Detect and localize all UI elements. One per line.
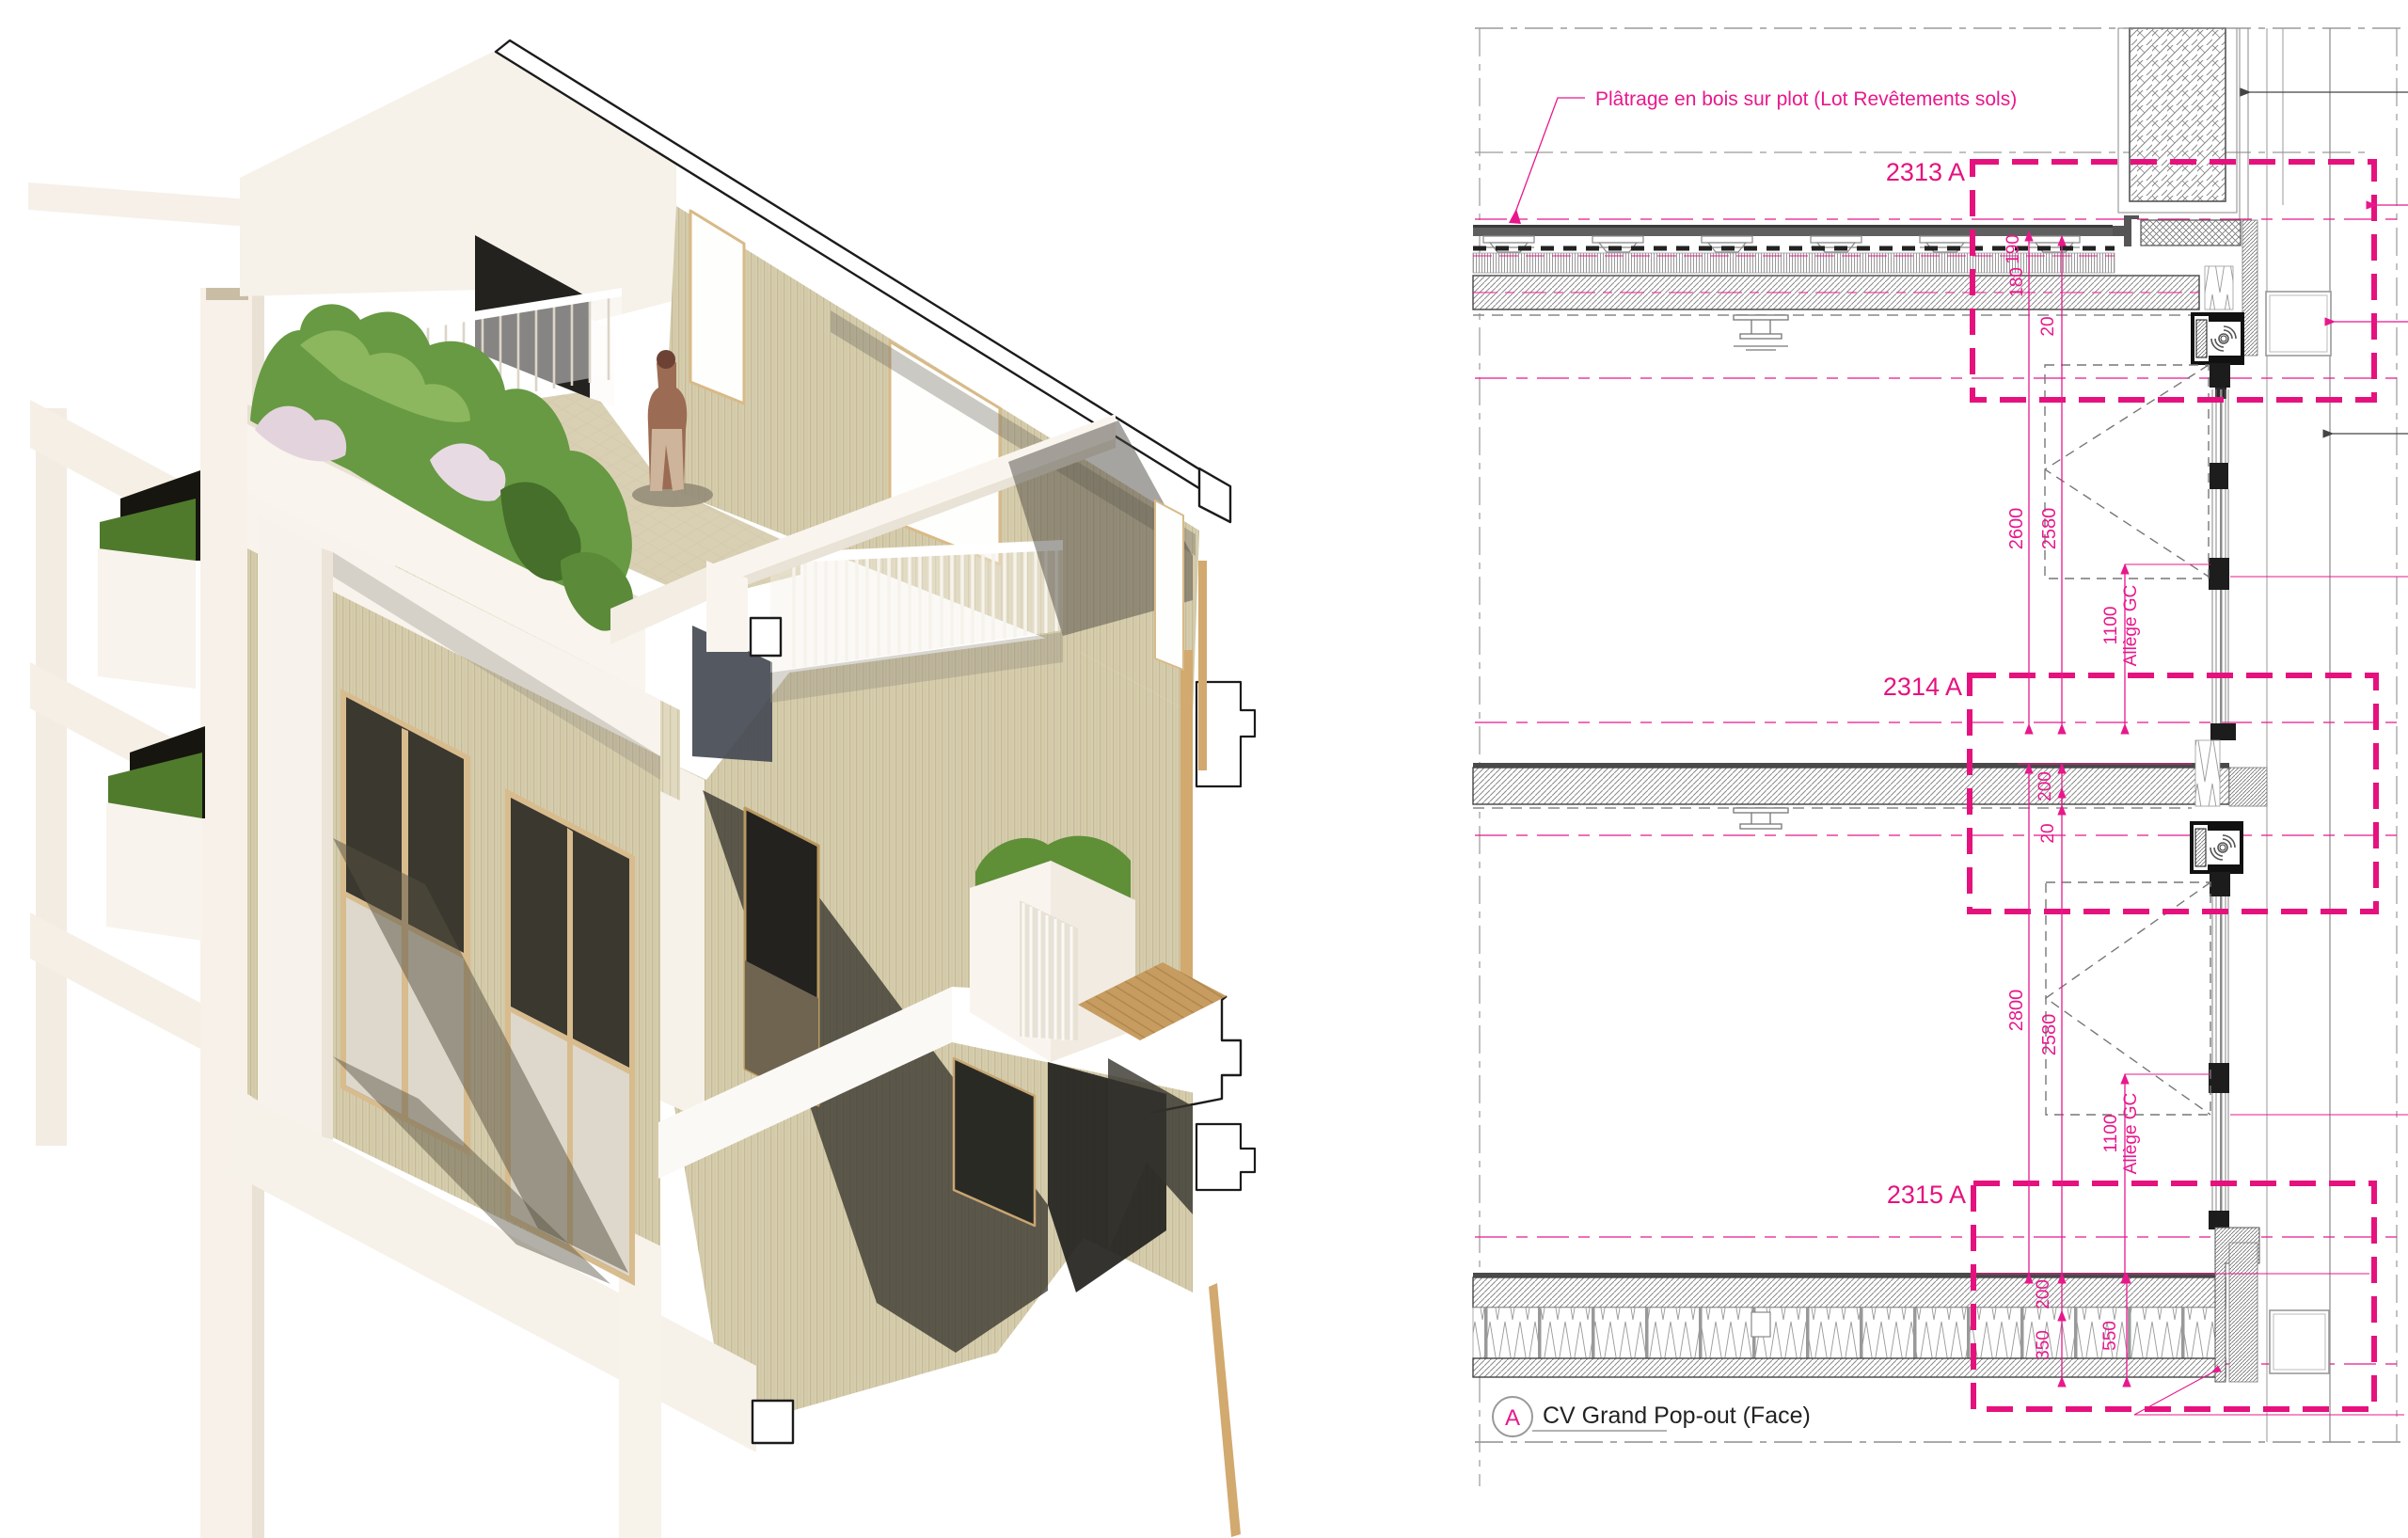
svg-text:Allège GC: Allège GC [2121,585,2141,667]
svg-text:180: 180 [2007,267,2027,297]
svg-text:A: A [1505,1405,1520,1431]
svg-text:20: 20 [2038,316,2058,336]
svg-text:190: 190 [2004,234,2023,264]
svg-text:2315 A: 2315 A [1887,1181,1966,1209]
svg-text:20: 20 [2038,823,2058,843]
svg-text:1100: 1100 [2101,607,2121,645]
svg-text:2600: 2600 [2006,508,2027,550]
svg-text:CV Grand Pop-out (Face): CV Grand Pop-out (Face) [1543,1403,1811,1429]
svg-text:350: 350 [2034,1330,2053,1360]
svg-text:2314 A: 2314 A [1883,673,1962,701]
svg-text:2313 A: 2313 A [1886,158,1965,186]
svg-text:Allège GC: Allège GC [2121,1093,2141,1175]
svg-text:550: 550 [2100,1321,2120,1351]
svg-text:2800: 2800 [2006,990,2027,1032]
svg-text:200: 200 [2036,771,2055,801]
svg-text:2580: 2580 [2039,508,2060,550]
svg-text:Plâtrage en bois sur plot (Lot: Plâtrage en bois sur plot (Lot Revêtemen… [1595,88,2017,110]
svg-text:200: 200 [2034,1279,2053,1309]
svg-text:1100: 1100 [2101,1115,2121,1153]
svg-text:2580: 2580 [2039,1014,2060,1056]
